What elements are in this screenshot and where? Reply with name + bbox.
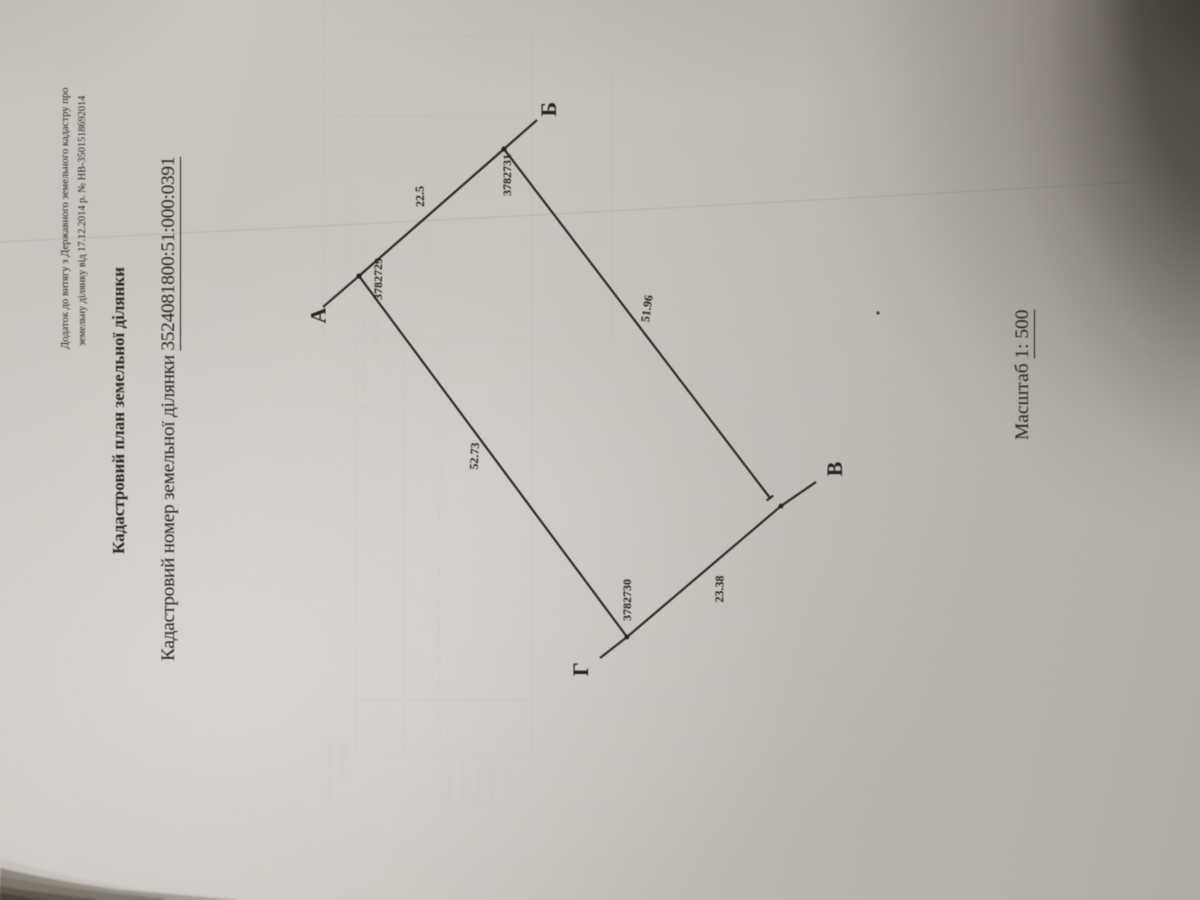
svg-text:51.96: 51.96 xyxy=(638,294,656,323)
svg-text:В: В xyxy=(822,461,847,476)
svg-text:Г: Г xyxy=(568,662,593,676)
svg-text:А: А xyxy=(306,307,331,323)
svg-text:3782730: 3782730 xyxy=(620,579,634,621)
svg-text:3782731: 3782731 xyxy=(500,154,514,196)
svg-text:22.5: 22.5 xyxy=(412,186,427,207)
svg-text:3782729: 3782729 xyxy=(371,258,385,300)
svg-text:23.38: 23.38 xyxy=(712,575,726,602)
svg-text:52.73: 52.73 xyxy=(467,442,482,470)
svg-text:Б: Б xyxy=(536,102,561,117)
